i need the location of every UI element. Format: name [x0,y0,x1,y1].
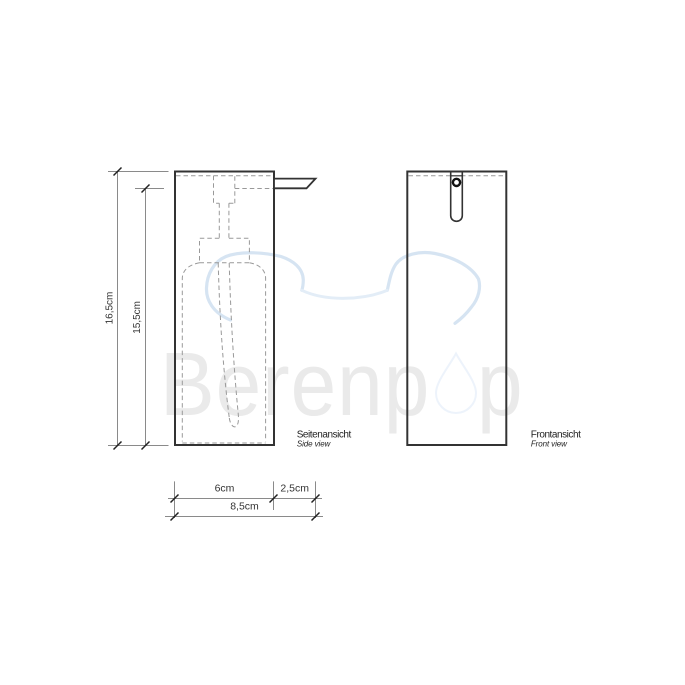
svg-text:15,5cm: 15,5cm [132,301,143,334]
svg-text:6cm: 6cm [215,483,235,495]
svg-text:Berenp: Berenp [160,334,430,434]
svg-text:Front view: Front view [531,439,568,448]
svg-text:8,5cm: 8,5cm [230,501,259,513]
svg-text:Side view: Side view [297,439,332,448]
svg-text:p: p [477,334,523,434]
svg-text:2,5cm: 2,5cm [280,483,309,495]
svg-text:16,5cm: 16,5cm [104,292,115,325]
